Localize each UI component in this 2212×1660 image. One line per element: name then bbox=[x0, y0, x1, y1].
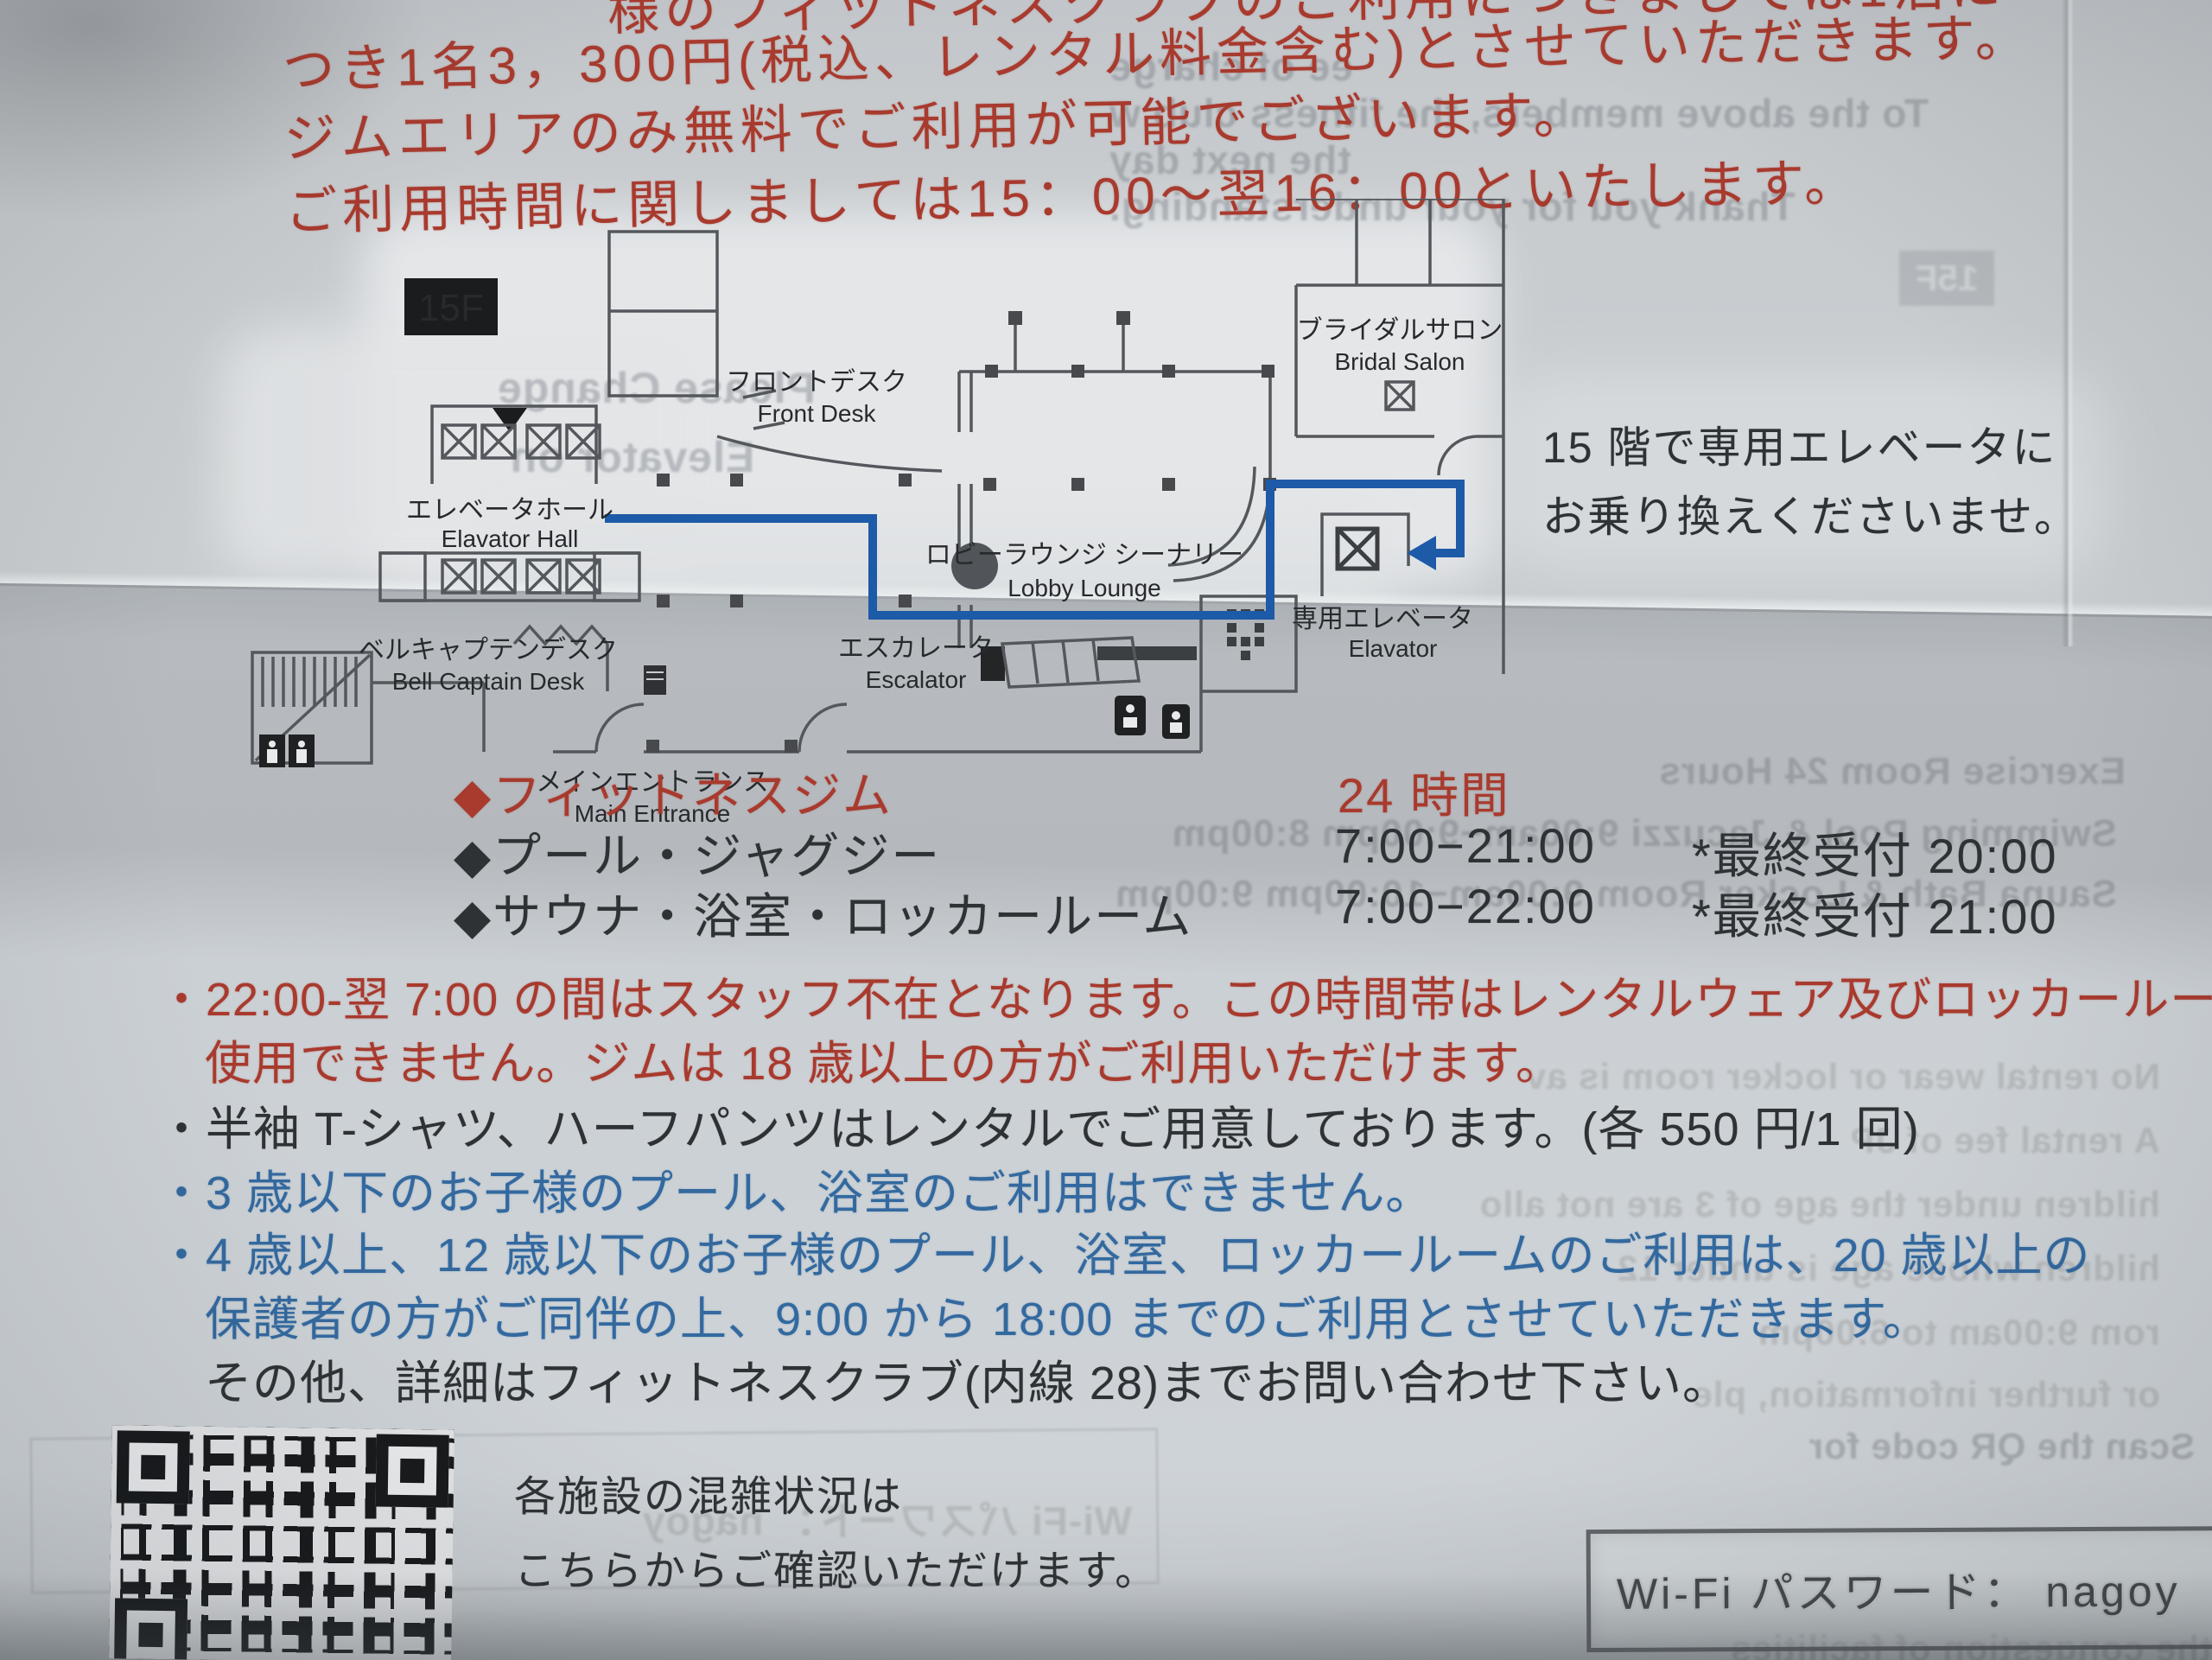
diamond-bullet-icon: ◆ bbox=[454, 829, 493, 883]
private-elevator-car-icon bbox=[1338, 529, 1377, 569]
hours-row-pool-jacuzzi: ◆プール・ジャグジー 7:00−21:00 *最終受付 20:00 bbox=[0, 817, 2212, 878]
note-line: その他、詳細はフィットネスクラブ(内線 28)までお問い合わせ下さい。 bbox=[205, 1345, 1730, 1413]
facility-last-entry: *最終受付 20:00 bbox=[1692, 817, 2058, 887]
label-front-desk-jp: フロントデスク bbox=[726, 368, 907, 397]
note-line: ・半袖 T-シャツ、ハーフパンツはレンタルでご用意しております。(各 550 円… bbox=[158, 1091, 1920, 1159]
note-line: ・3 歳以下のお子様のプール、浴室のご利用はできません。 bbox=[158, 1154, 1433, 1223]
bottom-shadow bbox=[0, 1573, 2212, 1660]
floor-badge: 15F bbox=[404, 278, 498, 335]
bell-captain-desk-icon bbox=[644, 665, 666, 695]
qr-finder-icon bbox=[117, 1430, 190, 1504]
label-lobby-lounge-en: Lobby Lounge bbox=[1007, 575, 1161, 601]
label-private-elevator-en: Elavator bbox=[1349, 635, 1438, 662]
facility-hours: 7:00−22:00 bbox=[1335, 878, 1596, 934]
transfer-note-line-2: お乗り換えくださいませ。 bbox=[1542, 482, 2079, 544]
diamond-bullet-icon: ◆ bbox=[454, 889, 493, 944]
showthrough-floor-badge: 15F bbox=[1899, 251, 1994, 306]
note-line: 保護者の方がご同伴の上、9:00 から 18:00 までのご利用とさせていただき… bbox=[205, 1281, 1930, 1349]
label-elevator-hall-jp: エレベータホール bbox=[406, 496, 613, 525]
facility-name: ◆サウナ・浴室・ロッカールーム bbox=[454, 878, 1192, 948]
label-bridal-salon-jp: ブライダルサロン bbox=[1297, 316, 1503, 345]
facility-hours: 7:00−21:00 bbox=[1335, 817, 1596, 874]
elevator-cars-icon bbox=[442, 560, 600, 593]
label-bridal-salon-en: Bridal Salon bbox=[1335, 348, 1465, 375]
note-line: ・22:00-翌 7:00 の間はスタッフ不在となります。この時間帯はレンタルウ… bbox=[158, 961, 2212, 1029]
label-front-desk-en: Front Desk bbox=[758, 400, 877, 427]
label-bell-captain-jp: ベルキャプテンデスク bbox=[359, 636, 618, 665]
label-lobby-lounge-jp: ロビーラウンジ シーナリー bbox=[925, 541, 1243, 569]
label-bell-captain-en: Bell Captain Desk bbox=[392, 668, 586, 695]
label-escalator-jp: エスカレータ bbox=[838, 634, 994, 663]
facility-last-entry: *最終受付 21:00 bbox=[1692, 878, 2058, 948]
qr-finder-icon bbox=[376, 1434, 449, 1508]
elevator-car-icon bbox=[1386, 382, 1414, 410]
hours-row-sauna-locker: ◆サウナ・浴室・ロッカールーム 7:00−22:00 *最終受付 21:00 bbox=[0, 878, 2212, 938]
diamond-bullet-icon: ◆ bbox=[454, 768, 493, 823]
facility-hours: 24 時間 bbox=[1338, 757, 1510, 827]
hours-row-fitness-gym: ◆フィットネスジム 24 時間 bbox=[0, 757, 2212, 817]
facility-name: ◆フィットネスジム bbox=[454, 757, 893, 827]
label-elevator-hall-en: Elavator Hall bbox=[442, 525, 579, 552]
label-escalator-en: Escalator bbox=[866, 666, 967, 693]
transfer-note-line-1: 15 階で専用エレベータに bbox=[1542, 413, 2057, 475]
accessibility-icons bbox=[1115, 696, 1190, 739]
photographed-document-sheet: ee of charge To the above members, the f… bbox=[0, 0, 2212, 1660]
showthrough-text: Scan the QR code for bbox=[1763, 1426, 2195, 1467]
label-private-elevator-jp: 専用エレベータ bbox=[1292, 605, 1473, 633]
floor-badge-label: 15F bbox=[418, 287, 484, 329]
elevator-cars-icon bbox=[442, 425, 600, 458]
route-arrow-icon bbox=[1407, 536, 1436, 570]
facility-name: ◆プール・ジャグジー bbox=[454, 817, 941, 887]
qr-caption-line-1: 各施設の混雑状況は bbox=[514, 1462, 903, 1523]
note-line: ・4 歳以上、12 歳以下のお子様のプール、浴室、ロッカールームのご利用は、20… bbox=[158, 1217, 2091, 1285]
note-line: 使用できません。ジムは 18 歳以上の方がご利用いただけます。 bbox=[205, 1025, 1563, 1093]
